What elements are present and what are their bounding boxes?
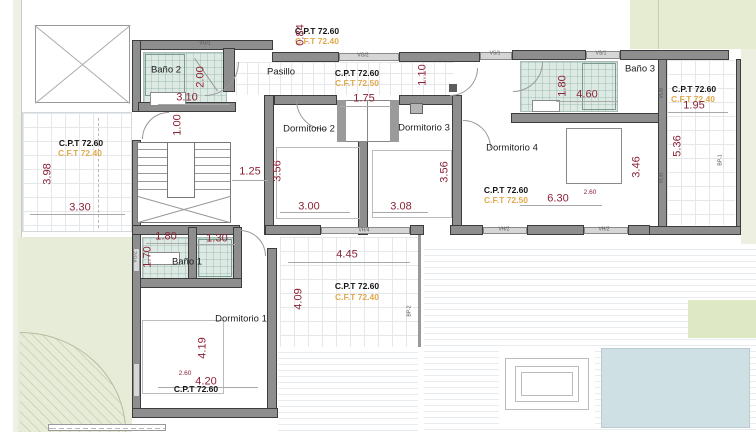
pool (601, 348, 750, 428)
wall-dorm3-top (399, 95, 456, 105)
wall-bottom-e (628, 225, 650, 235)
dim-hall-width: 1.10 (418, 64, 429, 85)
dim-dorm4-bed: 2.60 (584, 190, 597, 197)
tag-vs1-b: VS/1 (596, 52, 607, 57)
dim-dorm1-width: 4.20 (195, 377, 216, 388)
dim-bano1-right: 1.30 (206, 234, 227, 245)
tag-bp1: BP-1 (719, 154, 724, 165)
window-left-dorm1 (133, 363, 140, 397)
dim-dorm1-depth: 4.19 (198, 337, 209, 358)
level-terrace-left-cft: C.F.T 72.40 (58, 149, 102, 158)
wall-top-3 (399, 52, 480, 62)
dim-bano3-depth: 1.80 (558, 75, 569, 96)
deck-step-3 (521, 372, 573, 396)
level-terrace-left-cpt: C.P.T 72.60 (59, 139, 103, 148)
door-arc-hall-left (142, 112, 169, 139)
top-right-green (630, 0, 756, 49)
tag-vs1-a: VS/1 (490, 52, 501, 57)
tag-vg2-top: VG/2 (357, 54, 368, 59)
dim-terrace-right-depth: 5.36 (673, 135, 684, 156)
wall-top-2 (272, 52, 339, 62)
dim-dorm1-bed: 2.60 (179, 371, 192, 378)
room-label-pasillo: Pasillo (267, 67, 295, 77)
title-strip (48, 424, 166, 431)
terrace-left-dashed-line (98, 118, 99, 228)
tag-vh4: VH/4 (358, 229, 369, 234)
dim-dorm3-width: 3.08 (390, 202, 411, 213)
level-terrace-center-cft: C.F.T 72.40 (335, 293, 379, 302)
dim-terrace-right-width: 1.95 (683, 101, 704, 112)
dim-bano3-width: 4.60 (576, 90, 597, 101)
room-label-bano3: Baño 3 (625, 64, 655, 74)
level-pasillo-cft: C.F.T 72.50 (335, 79, 379, 88)
dim-bano1-door: 1.70 (143, 246, 154, 267)
wall-bano1-divider (188, 227, 197, 279)
terrace-center-rail (418, 235, 421, 347)
deck-center (278, 347, 418, 432)
window-vg2-top (339, 53, 399, 61)
room-label-dorm2: Dormitorio 2 (283, 124, 335, 134)
wall-bottom-a (265, 225, 321, 235)
level-terrace-center-cpt: C.P.T 72.60 (335, 282, 379, 291)
room-label-dorm4: Dormitorio 4 (486, 143, 538, 153)
top-right-green-divider (658, 0, 659, 49)
dim-dorm4-width: 6.30 (547, 194, 568, 205)
dimline-dorm4-width (520, 205, 602, 206)
wall-bano1-bottom (140, 278, 242, 288)
dim-terrace-left-width: 3.30 (69, 203, 90, 214)
wall-dorm1-bottom (132, 408, 278, 418)
wall-dorm3-east (452, 95, 462, 235)
dim-stair-width: 1.25 (239, 167, 260, 178)
dimline-wardrobe (340, 106, 392, 107)
room-label-bano2: Baño 2 (151, 65, 181, 75)
dim-bano2-depth: 2.00 (196, 66, 207, 87)
wall-bottom-b (410, 225, 424, 235)
level-dorm4-cpt: C.P.T 72.60 (484, 186, 528, 195)
door-arc-dorm1 (240, 230, 266, 256)
wall-terrace-right-bottom (648, 226, 741, 235)
wall-bano3-bottom (511, 113, 661, 123)
dim-dorm4-depth: 3.46 (632, 156, 643, 177)
wall-bottom-d (527, 225, 584, 235)
dorm4-bed (566, 128, 622, 184)
tag-vh2-b: VH/2 (598, 228, 609, 233)
wall-top-4 (512, 50, 586, 60)
dimline-terrace-right-width (668, 112, 728, 113)
door-arc-dorm3 (450, 68, 478, 96)
dimline-bano2-width (158, 104, 230, 105)
tag-vh2-a: VH/2 (498, 228, 509, 233)
bano3-shower (582, 63, 616, 110)
dim-terrace-left-depth: 3.98 (43, 163, 54, 184)
dim-hall-door: 1.00 (173, 114, 184, 135)
dim-top-offset: 0.84 (296, 24, 307, 45)
tag-vg2-left: VG/2 (134, 251, 139, 262)
tag-vlb-a: VL/B (660, 88, 665, 99)
dimline-bano3-width (556, 101, 618, 102)
level-dorm4-cft: C.F.T 72.50 (484, 196, 528, 205)
green-patch-right (688, 300, 756, 338)
room-label-dorm3: Dormitorio 3 (398, 123, 450, 133)
dimline-terrace-left-width (30, 214, 125, 215)
wall-bottom-c (450, 225, 483, 235)
dimline-bano1-left (146, 243, 188, 244)
dim-bano2-width: 3.10 (176, 93, 197, 104)
column-dorm3 (410, 103, 423, 114)
wall-terrace-right-east (736, 59, 741, 235)
dim-wardrobe-width: 1.75 (353, 94, 374, 105)
dimline-stair-width (232, 180, 268, 181)
room-label-dorm1: Dormitorio 1 (215, 314, 267, 324)
wall-top-5 (620, 50, 729, 60)
stair-stringer (167, 142, 195, 198)
dim-dorm2-depth: 3.56 (273, 160, 284, 181)
dorm3-bed (372, 150, 452, 218)
tag-vlb-b: VL/B (660, 173, 665, 184)
wall-dorm1-east (267, 248, 277, 410)
dim-terrace-center-depth: 4.09 (294, 288, 305, 309)
level-terrace-right-cpt: C.P.T 72.60 (672, 85, 716, 94)
level-pasillo-cpt: C.P.T 72.60 (335, 69, 379, 78)
dim-dorm2-width: 3.00 (298, 202, 319, 213)
floor-plan: Baño 2 Pasillo Dormitorio 2 Dormitorio 3… (0, 0, 756, 432)
dim-terrace-center-width: 4.45 (336, 250, 357, 261)
tag-vg1: VG/1 (199, 42, 210, 47)
dimline-terrace-center-width (288, 262, 410, 263)
dim-dorm3-depth: 3.56 (440, 161, 451, 182)
dim-bano1-left: 1.80 (155, 232, 176, 243)
room-label-bano1: Baño 1 (172, 257, 202, 267)
tag-bp2: BP-2 (408, 305, 413, 316)
wall-bano3-east (658, 59, 667, 235)
